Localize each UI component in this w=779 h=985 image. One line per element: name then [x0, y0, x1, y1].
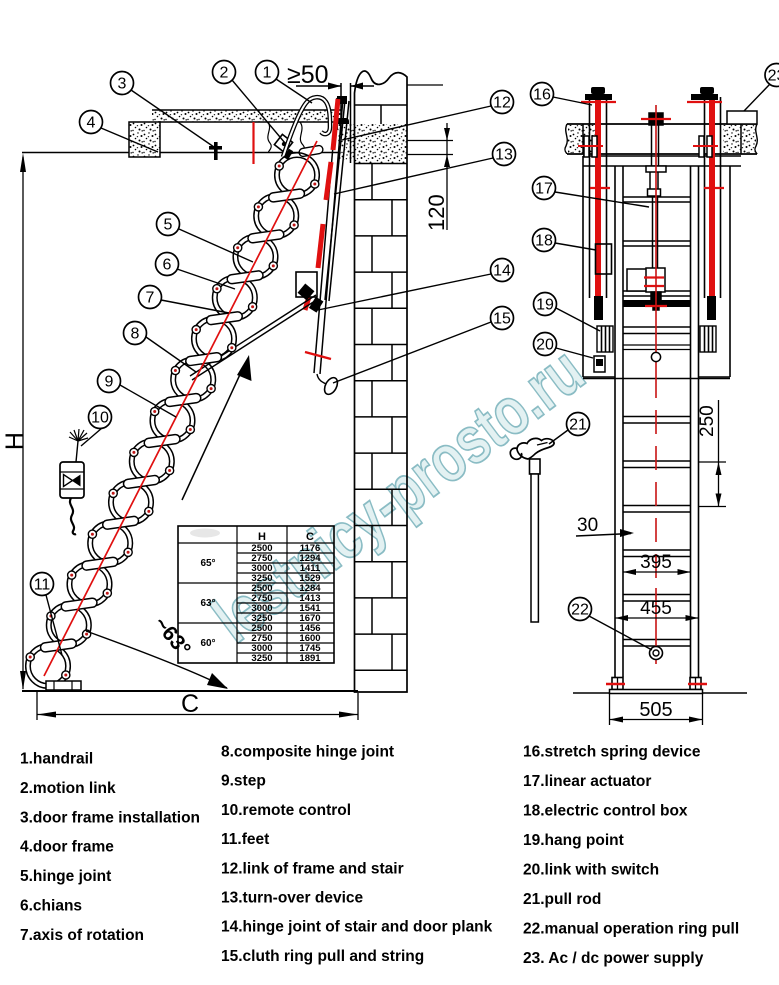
svg-text:3.door frame installation: 3.door frame installation	[20, 809, 200, 826]
svg-text:23. Ac / dc power supply: 23. Ac / dc power supply	[523, 950, 704, 967]
svg-text:4: 4	[87, 115, 96, 132]
svg-text:17.linear actuator: 17.linear actuator	[523, 773, 651, 790]
svg-text:C: C	[181, 690, 199, 718]
svg-text:22.manual operation ring pull: 22.manual operation ring pull	[523, 921, 739, 938]
svg-text:15.cluth ring pull and string: 15.cluth ring pull and string	[221, 948, 424, 965]
svg-text:3250: 3250	[251, 653, 272, 664]
svg-text:250: 250	[697, 405, 718, 437]
svg-text:1891: 1891	[299, 653, 321, 664]
svg-text:6.chians: 6.chians	[20, 898, 82, 915]
svg-text:455: 455	[640, 598, 672, 619]
svg-text:7.axis of rotation: 7.axis of rotation	[20, 927, 144, 944]
svg-text:15: 15	[493, 311, 511, 328]
svg-text:8: 8	[131, 326, 140, 343]
svg-text:17: 17	[535, 181, 553, 198]
svg-text:10: 10	[91, 410, 109, 427]
svg-text:5: 5	[164, 217, 173, 234]
svg-text:60°: 60°	[200, 638, 215, 649]
svg-text:≥50: ≥50	[287, 61, 329, 89]
svg-text:30: 30	[577, 515, 598, 536]
svg-text:4.door frame: 4.door frame	[20, 839, 114, 856]
svg-text:10.remote control: 10.remote control	[221, 802, 351, 819]
svg-text:11.feet: 11.feet	[221, 831, 269, 848]
svg-text:H: H	[258, 531, 266, 543]
svg-text:12: 12	[493, 95, 511, 112]
svg-text:9.step: 9.step	[221, 773, 266, 790]
svg-text:2: 2	[220, 65, 229, 82]
svg-text:16.stretch spring device: 16.stretch spring device	[523, 744, 701, 761]
svg-text:1: 1	[263, 65, 272, 82]
svg-text:505: 505	[639, 699, 672, 721]
svg-text:19: 19	[536, 297, 554, 314]
svg-text:8.composite hinge joint: 8.composite hinge joint	[221, 744, 394, 761]
svg-text:12.link of frame and stair: 12.link of frame and stair	[221, 860, 404, 877]
svg-text:13: 13	[495, 147, 513, 164]
svg-text:2.motion link: 2.motion link	[20, 780, 116, 797]
svg-text:9: 9	[105, 374, 114, 391]
svg-text:14: 14	[493, 263, 511, 280]
svg-text:20.link with switch: 20.link with switch	[523, 862, 659, 879]
svg-text:3: 3	[118, 76, 127, 93]
svg-text:16: 16	[533, 87, 551, 104]
svg-text:19.hang point: 19.hang point	[523, 832, 624, 849]
svg-text:6: 6	[163, 257, 172, 274]
svg-text:120: 120	[424, 194, 449, 231]
svg-text:21: 21	[569, 417, 587, 434]
svg-text:395: 395	[640, 552, 672, 573]
svg-text:23: 23	[768, 68, 779, 85]
svg-text:11: 11	[34, 577, 51, 594]
svg-text:22: 22	[571, 602, 589, 619]
svg-text:65°: 65°	[200, 558, 215, 569]
svg-text:14.hinge joint of stair and do: 14.hinge joint of stair and door plank	[221, 919, 493, 936]
svg-text:21.pull rod: 21.pull rod	[523, 891, 601, 908]
svg-text:1.handrail: 1.handrail	[20, 751, 93, 768]
svg-text:7: 7	[146, 290, 155, 307]
svg-text:18: 18	[535, 233, 553, 250]
svg-text:13.turn-over device: 13.turn-over device	[221, 890, 364, 907]
svg-text:5.hinge joint: 5.hinge joint	[20, 868, 111, 885]
svg-text:18.electric control box: 18.electric control box	[523, 803, 688, 820]
svg-text:H: H	[1, 432, 29, 450]
